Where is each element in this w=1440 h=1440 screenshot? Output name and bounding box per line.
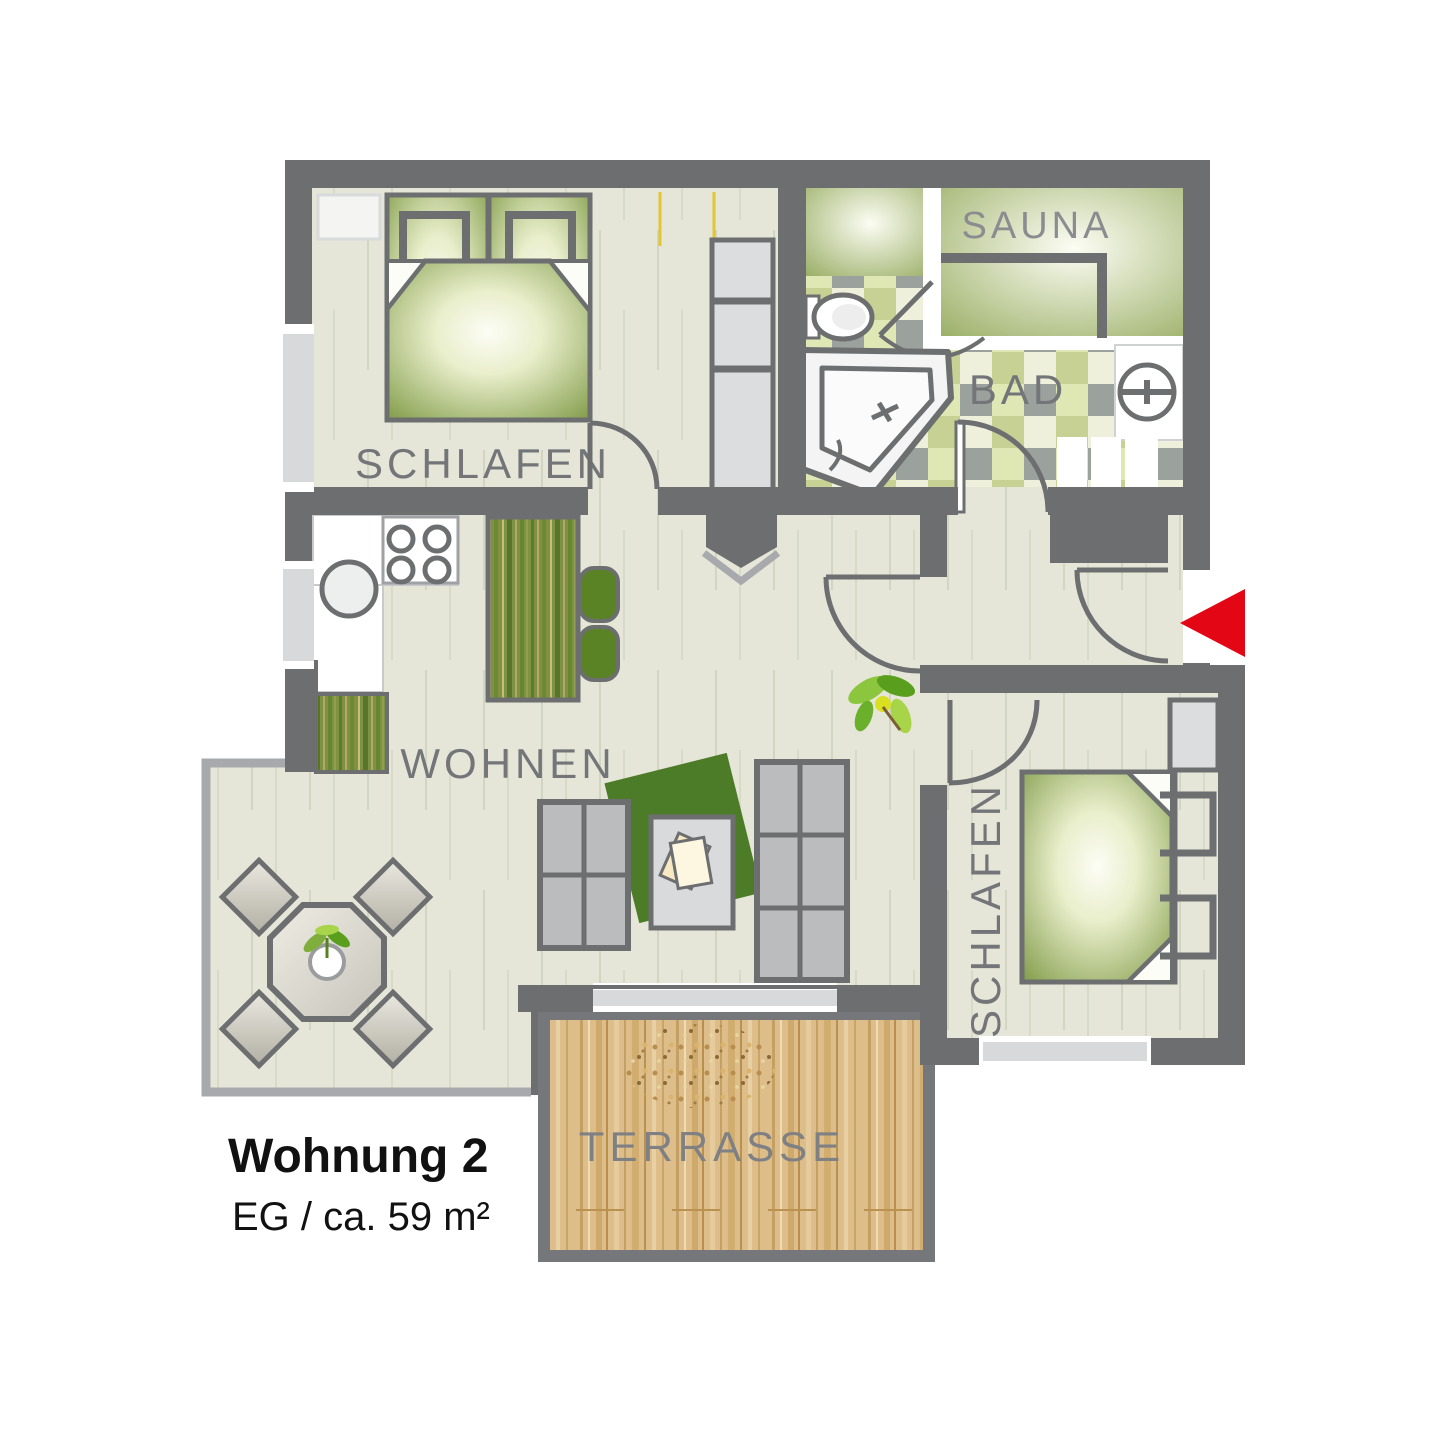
- double-bed: [387, 195, 590, 420]
- sauna-label: SAUNA: [962, 205, 1113, 247]
- wall-bedroom2-top: [920, 665, 1245, 693]
- stove: [383, 517, 458, 583]
- wall-living-bottom: [837, 985, 920, 1012]
- wall-top: [285, 160, 1210, 188]
- wall-bedroom2-bottom: [1147, 1038, 1245, 1065]
- shower-partition: [923, 188, 941, 338]
- gravel-decor: [624, 1024, 776, 1108]
- wall-stub: [920, 515, 947, 577]
- sliding-door-rail: [593, 985, 837, 989]
- wall-divider: [778, 160, 806, 515]
- wardrobe: [712, 240, 773, 498]
- apartment-floorplan: TERRASSE SAUNA BAD: [0, 0, 1440, 1440]
- terrace-sliding-door: [593, 990, 837, 1006]
- coffee-table: [651, 817, 733, 928]
- bedroom1-label: SCHLAFEN: [355, 440, 611, 487]
- bedroom2-window: [983, 1042, 1147, 1061]
- toilet: [806, 295, 872, 339]
- wall-living-bottom: [518, 985, 593, 1012]
- kitchen-window: [283, 569, 314, 661]
- blanket: [387, 261, 590, 420]
- wall-bedroom2-right: [1218, 665, 1245, 1065]
- wall-bedroom2-left: [920, 785, 947, 1038]
- terrace-label: TERRASSE: [579, 1123, 845, 1170]
- apartment-name: Wohnung 2: [228, 1130, 488, 1183]
- wall-entry: [1050, 515, 1168, 563]
- closet: [1170, 700, 1218, 770]
- sofa-large: [757, 762, 847, 980]
- plan-title: Wohnung 2 EG / ca. 59 m²: [228, 1130, 490, 1239]
- wall-bath: [1048, 487, 1183, 515]
- wall-left: [285, 160, 312, 330]
- shower: [806, 188, 923, 276]
- kitchen-chair: [580, 627, 618, 680]
- nightstand: [318, 195, 380, 239]
- magazine: [670, 837, 711, 888]
- bath-label: BAD: [969, 366, 1067, 413]
- kitchen-table: [488, 517, 578, 700]
- living-label: WOHNEN: [400, 740, 615, 787]
- wall-left: [285, 660, 318, 772]
- kitchen-sink: [322, 562, 376, 616]
- bedroom2-label: SCHLAFEN: [962, 782, 1009, 1038]
- entrance-arrow-icon: [1180, 589, 1245, 657]
- kitchen-cabinet: [316, 694, 387, 772]
- blanket: [1022, 772, 1172, 982]
- wall-bedroom1: [658, 487, 778, 515]
- kitchen-chair: [580, 568, 618, 621]
- bedroom1-window: [283, 334, 314, 482]
- wall-bedroom2-bottom: [920, 1038, 983, 1065]
- floorplan-page: TERRASSE SAUNA BAD: [0, 0, 1440, 1440]
- bathroom: SAUNA BAD: [800, 188, 1183, 512]
- wall-right: [1183, 160, 1210, 570]
- sofa-small: [540, 802, 628, 948]
- terrace: TERRASSE: [544, 1014, 929, 1256]
- washbasin: [1115, 345, 1183, 440]
- apartment-details: EG / ca. 59 m²: [232, 1195, 490, 1239]
- wall-bath: [806, 487, 958, 515]
- wall-bedroom1: [285, 487, 588, 515]
